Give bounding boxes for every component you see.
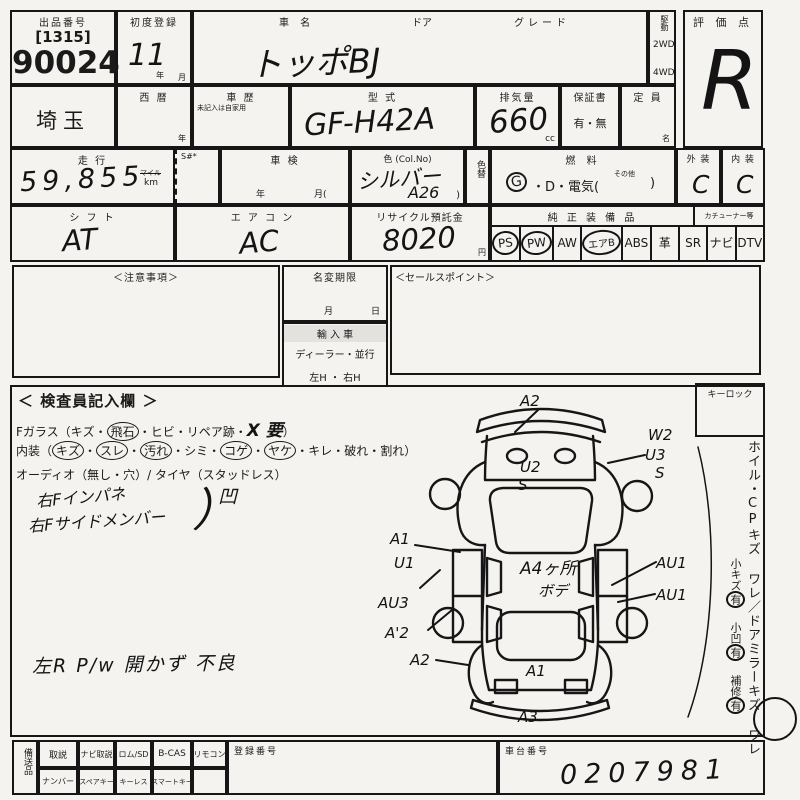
inspection-cell: 車 検 年 月( [220,148,350,205]
damage-code-hood-s: S [518,476,528,494]
interior-item-kizu: キズ [52,441,84,460]
color-cell: 色 (Col.No) シルバー A26 ) [350,148,465,205]
name-change-label: 名変期限 [284,269,386,284]
sales-point-label: ＜セールスポイント＞ [395,269,495,284]
registration-number-label: 登録番号 [234,744,278,757]
history-cell: 車 歴 未記入は自家用 [192,85,290,148]
bcas-label: B-CAS [158,749,186,759]
interior-condition-line: 内装（キズ・スレ・汚れ・シミ・コゲ・ヤケ・キレ・破れ・割れ） [16,441,416,460]
sep-1: ・ [128,444,140,458]
sidebar-repair: 補修 [727,661,743,697]
recycle-fee-value: 8020 [381,220,456,258]
equipment-items-row: PS PW AW エアB ABS 革 SR ナビ DTV [492,225,763,260]
exterior-grade-label: 外 装 [678,152,719,165]
import-label: 輸 入 車 [284,325,386,342]
first-registration-value: 11 [128,38,166,73]
interior-grade-cell: 内 装 C [721,148,765,205]
damage-code-rear-a1: A1 [526,662,546,680]
mileage-cell: 走 行 59,855 マイル km [10,148,175,205]
audio-tire-line: オーディオ（無し・穴）/ タイヤ（スタッドレス） [16,466,287,483]
sep-4: ・ [252,444,264,458]
dtv-label: DTV [737,236,762,250]
front-glass-hand-note: X 要 [247,421,283,441]
lot-code: [1315] [12,28,114,46]
equipment-item-sr: SR [678,225,706,260]
front-glass-line: Fガラス（キズ・飛石・ヒビ・リペア跡・X 要） [16,416,295,441]
equipment-item-ps: PS [492,225,519,260]
front-glass-text-2: ・ヒビ・リペア跡・ [139,425,247,439]
s-number-cell: S#* [175,148,220,205]
interior-item-sure: スレ [96,441,128,460]
footer-cell-remote: リモコン [192,740,227,768]
first-registration-cell: 初度登録 11 年 月 [116,10,192,85]
number-plate-label: ナンバー [42,776,74,787]
manual-label: 取説 [49,748,67,761]
equipment-item-airbag: エアB [580,225,621,260]
sep-5: ・ [296,444,308,458]
inspection-month-unit: 月( [314,187,327,200]
sep-3: ・ [208,444,220,458]
shift-value: AT [61,222,99,258]
auction-sheet: 出品番号 [1315] 90024 初度登録 11 年 月 車 名 ドア グレー… [0,0,800,800]
name-change-day: 日 [371,304,380,317]
drive-type-cell: 駆動 2WD 4WD [648,10,676,85]
notes-label: ＜注意事項＞ [14,269,278,284]
remote-label: リモコン [194,749,226,760]
sidebar-sub-notes: 小キズ有小凹有補修有 [727,440,743,736]
door-label: ドア [412,14,432,29]
sidebar-small-scratch: 小キズ [729,558,742,591]
tuner-label: カチューナー等 [693,207,763,227]
sep-6: ・ [332,444,344,458]
sidebar-main-text: ホイル・CPキズ ワレ／ドアミラーキズ ワレ [743,440,762,736]
name-change-box: 名変期限 月 日 [282,265,388,322]
prefecture-cell: 埼玉 [10,85,116,148]
drive-4wd-option: 4WD [653,68,675,78]
interior-grade-value: C [736,170,753,199]
mileage-value: 59,855 [19,161,145,198]
airbag-circled: エアB [581,228,622,257]
damage-code-left-a1: A1 [390,530,410,548]
capacity-label: 定 員 [622,89,674,104]
displacement-cell: 排気量 660 cc [475,85,560,148]
shift-cell: シ フ ト AT [10,205,175,262]
handle-options: 左H ・ 右H [284,369,386,384]
equipment-item-leather: 革 [650,225,678,260]
aw-label: AW [557,236,576,250]
import-box: 輸 入 車 ディーラー・並行 左H ・ 右H [282,322,388,387]
lot-number-label: 出品番号 [12,14,114,29]
pw-circled: PW [520,229,553,256]
spare-key-label: スペアキー [79,777,114,787]
exterior-grade-cell: 外 装 C [676,148,721,205]
prefecture-value: 埼玉 [12,105,114,135]
displacement-unit: cc [545,134,555,144]
equipment-item-aw: AW [552,225,580,260]
navi-manual-label: ナビ取説 [81,749,113,760]
navi-label: ナビ [709,234,733,251]
name-change-month: 月 [324,304,333,317]
calendar-year-cell: 西 暦 年 [116,85,192,148]
damage-summary-body: ボデ [538,580,568,601]
front-glass-text-3: ） [283,425,295,439]
footer-cell-bcas: B-CAS [152,740,192,768]
color-number: A26 [408,183,439,202]
hand-note-power-window: 左R P/w 開かず 不良 [32,648,237,679]
chassis-number-value: 0207981 [560,754,730,791]
interior-prefix: 内装（ [16,444,52,458]
fuel-cell: 燃 料 G ・D・電気( その他 ) [490,148,676,205]
drive-2wd-option: 2WD [653,40,675,50]
history-note: 未記入は自家用 [197,103,246,113]
equipment-item-pw: PW [519,225,552,260]
model-code-cell: 型 式 GF-H42A [290,85,475,148]
fuel-gasoline-option: G [505,171,528,194]
s-number-label: S#* [181,152,197,161]
footer-vertical-label: 備送品 [21,748,34,775]
damage-code-left-rear-a2: A2 [410,651,430,669]
warranty-options: 有・無 [562,115,618,131]
interior-item-koge: コゲ [220,441,252,460]
equipment-item-dtv: DTV [735,225,763,260]
footer-cell-manual: 取説 [38,740,78,768]
damage-code-w2: W2 [648,426,672,444]
sep-7: ・ [368,444,380,458]
fuel-other-label: その他 [614,169,635,179]
damage-code-front-bumper: A2 [520,392,540,410]
footer-cell-blank [192,768,227,795]
lot-number-cell: 出品番号 [1315] 90024 [10,10,116,85]
notes-box: ＜注意事項＞ [12,265,280,378]
footer-cell-smart-key: スマートキー [152,768,192,795]
footer-cell-navi-manual: ナビ取説 [78,740,115,768]
equipment-label: 純 正 装 備 品 [492,209,693,224]
damage-code-left-au3: AU3 [378,594,409,612]
color-change-label: 色替 [474,160,487,178]
hand-note-dent: 凹 [218,482,237,509]
capacity-cell: 定 員 名 [620,85,676,148]
damage-code-s-right: S [655,464,665,482]
first-reg-month-unit: 月 [178,72,186,83]
mileage-mile-unit: マイル [140,168,161,178]
sr-label: SR [685,236,701,250]
history-label: 車 歴 [194,89,288,104]
abs-label: ABS [624,236,648,250]
fuel-label: 燃 料 [492,152,674,167]
warranty-cell: 保証書 有・無 [560,85,620,148]
damage-code-left-u1: U1 [394,554,415,572]
equipment-cell: 純 正 装 備 品 カチューナー等 PS PW AW エアB ABS 革 SR … [490,205,765,262]
smart-key-label: スマートキー [151,777,193,787]
interior-item-yake: ヤケ [264,441,296,460]
damage-code-left-a2-prime: A'2 [385,624,409,642]
model-code-value: GF-H42A [303,102,436,144]
score-cell: 評 価 点 R [683,10,763,148]
leather-label: 革 [659,234,671,251]
sidebar-damage-notes: ホイル・CPキズ ワレ／ドアミラーキズ ワレ 小キズ有小凹有補修有 [702,440,762,736]
sidebar-small-dent-yes: 有 [726,644,745,661]
lot-number: 90024 [12,45,114,81]
chassis-number-cell: 車台番号 0207981 [498,740,765,795]
sidebar-small-scratch-yes: 有 [726,591,745,608]
exterior-grade-value: C [692,170,709,199]
displacement-value: 660 [488,101,550,141]
warranty-label: 保証書 [562,89,618,104]
grade-label: グレード [514,14,570,29]
score-value: R [701,34,758,129]
fuel-close-paren: ) [650,176,655,191]
car-name-cell: 車 名 ドア グレード トッポBJ [192,10,648,85]
capacity-unit: 名 [662,133,670,144]
aircon-label: エ ア コ ン [177,209,348,224]
aircon-value: AC [238,223,281,260]
keyless-label: キーレス [120,777,148,787]
damage-code-right-au1-b: AU1 [656,586,687,604]
flying-stone-circled: 飛石 [107,422,139,441]
sales-point-box: ＜セールスポイント＞ [390,265,761,375]
damage-code-hood-u2: U2 [520,458,541,476]
interior-item-yabure: 破れ [344,444,368,458]
interior-item-yogore: 汚れ [140,441,172,460]
drive-type-label: 駆動 [659,15,670,31]
damage-code-right-au1-a: AU1 [656,554,687,572]
sidebar-repair-yes: 有 [726,697,745,714]
damage-code-rear-a3: A3 [518,708,538,726]
car-name-value: トッポBJ [248,34,381,87]
chassis-number-label: 車台番号 [505,744,549,757]
interior-grade-label: 内 装 [723,152,763,165]
damage-code-u3: U3 [645,446,666,464]
equipment-item-abs: ABS [621,225,649,260]
score-label: 評 価 点 [685,14,761,30]
rom-sd-label: ロム/SD [119,749,149,760]
footer-cell-spare-key: スペアキー [78,768,115,795]
footer-vertical-label-cell: 備送品 [12,740,38,795]
color-close-paren: ) [456,190,460,201]
equipment-header: 純 正 装 備 品 カチューナー等 [492,207,763,227]
ps-circled: PS [491,229,520,256]
import-options: ディーラー・並行 [284,346,386,361]
inspector-title: ＜ 検査員記入欄 ＞ [18,390,158,411]
footer-cell-number-plate: ナンバー [38,768,78,795]
calendar-year-label: 西 暦 [118,89,190,104]
footer-cell-keyless: キーレス [115,768,152,795]
footer-cell-rom-sd: ロム/SD [115,740,152,768]
mileage-km-unit: km [144,178,158,188]
model-code-label: 型 式 [292,89,473,104]
recycle-fee-cell: リサイクル預託金 8020 円 [350,205,490,262]
inspection-label: 車 検 [222,152,348,167]
sep-2: ・ [172,444,184,458]
car-name-label: 車 名 [279,14,314,29]
first-reg-year-unit: 年 [156,70,164,81]
color-change-cell: 色替 [465,148,490,205]
calendar-year-unit: 年 [178,133,186,144]
recycle-fee-unit: 円 [478,247,486,258]
damage-summary-count: A4ヶ所 [520,554,576,579]
interior-item-shimi: シミ [184,444,208,458]
fuel-options: ・D・電気( [532,176,599,195]
interior-item-kire: キレ [308,444,332,458]
front-glass-text-1: Fガラス（キズ・ [16,425,107,439]
sep-0: ・ [84,444,96,458]
registration-number-cell: 登録番号 [227,740,498,795]
sidebar-small-dent: 小凹 [727,608,743,644]
inspection-year-unit: 年 [256,187,265,200]
aircon-cell: エ ア コ ン AC [175,205,350,262]
first-registration-label: 初度登録 [118,14,190,29]
equipment-item-navi: ナビ [706,225,734,260]
